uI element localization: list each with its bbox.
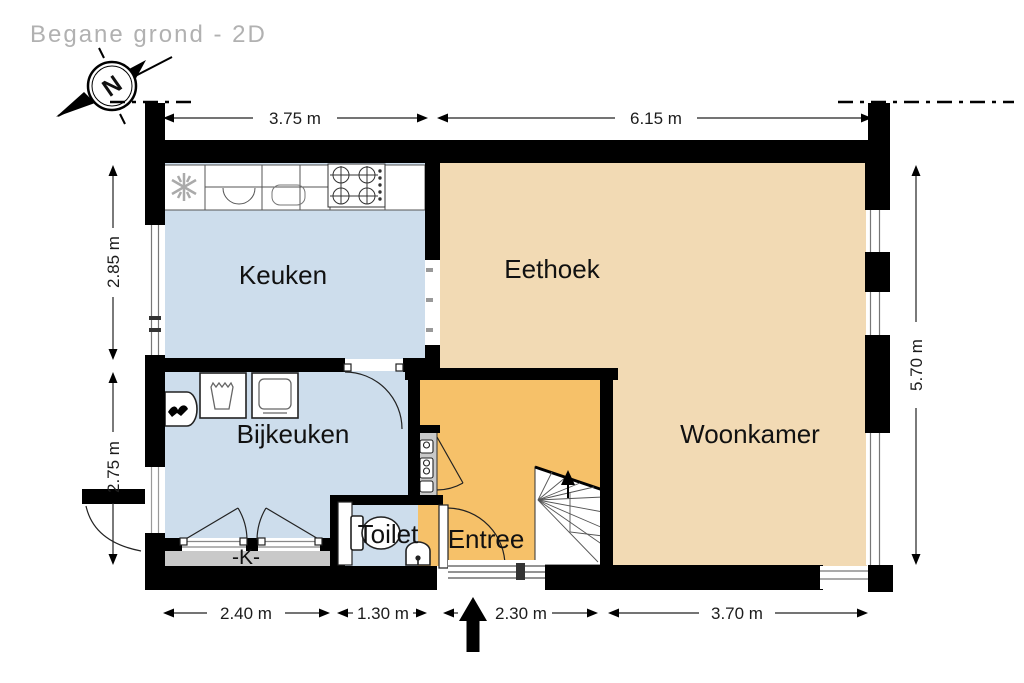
window-right-3 [866, 433, 888, 565]
floorplan-page: Begane grond - 2D N [0, 0, 1024, 683]
window-keuken-left [147, 225, 163, 355]
wall-top [145, 140, 890, 163]
dim-bottom-bijkeuken: 2.40 m [220, 604, 272, 623]
front-door-threshold [448, 560, 545, 585]
window-right-1 [866, 210, 888, 252]
stove-icon [328, 164, 385, 207]
kitchen-counter [162, 164, 425, 210]
wall-corner-bottom-right [868, 565, 893, 592]
door-toilet [338, 502, 352, 565]
dim-left-bijkeuken: 2.75 m [104, 441, 123, 493]
wall-right-middle [865, 335, 890, 433]
toilet-label: Toilet [358, 519, 419, 549]
keuken-label: Keuken [239, 260, 327, 290]
wall-stub-top-left [145, 103, 165, 143]
utility-meters-icon [420, 440, 433, 492]
wall-keuken-eethoek-upper [425, 163, 440, 260]
bijkeuken-label: Bijkeuken [237, 419, 350, 449]
wall-entree-top [405, 368, 618, 380]
wall-bottom-left [145, 566, 437, 590]
dim-right-living: 5.70 m [907, 339, 926, 391]
wall-left-upper [145, 163, 165, 225]
wall-bijkeuken-right [408, 378, 420, 502]
dim-bottom-entree: 2.30 m [495, 604, 547, 623]
dim-left-keuken: 2.85 m [104, 236, 123, 288]
page-title: Begane grond - 2D [30, 21, 267, 48]
dim-bottom-toilet: 1.30 m [357, 604, 409, 623]
dim-bottom-woonkamer: 3.70 m [711, 604, 763, 623]
boiler-icon [165, 392, 197, 426]
wall-entree-right [600, 368, 613, 567]
window-bottom-right [820, 566, 868, 589]
washing-machine-icon [200, 373, 246, 418]
woonkamer-label: Woonkamer [680, 419, 820, 449]
dim-top-living: 6.15 m [630, 109, 682, 128]
opening-keuken-eethoek [425, 260, 440, 345]
entree-label: Entree [448, 524, 525, 554]
wall-right-pier [865, 252, 890, 292]
closet-label: -K- [232, 546, 260, 569]
eethoek-label: Eethoek [504, 254, 600, 284]
wall-stub-top-right [868, 103, 890, 143]
wall-keuken-bijkeuken-left [145, 358, 345, 372]
window-right-2 [866, 292, 888, 335]
dim-top-keuken: 3.75 m [269, 109, 321, 128]
wall-right-upper [865, 163, 890, 210]
dryer-icon [252, 373, 298, 418]
floorplan-drawing: Begane grond - 2D N [0, 0, 1024, 683]
wall-bottom-right [545, 565, 823, 590]
entrance-arrow-icon [459, 597, 487, 652]
meter-cupboard [419, 432, 437, 496]
